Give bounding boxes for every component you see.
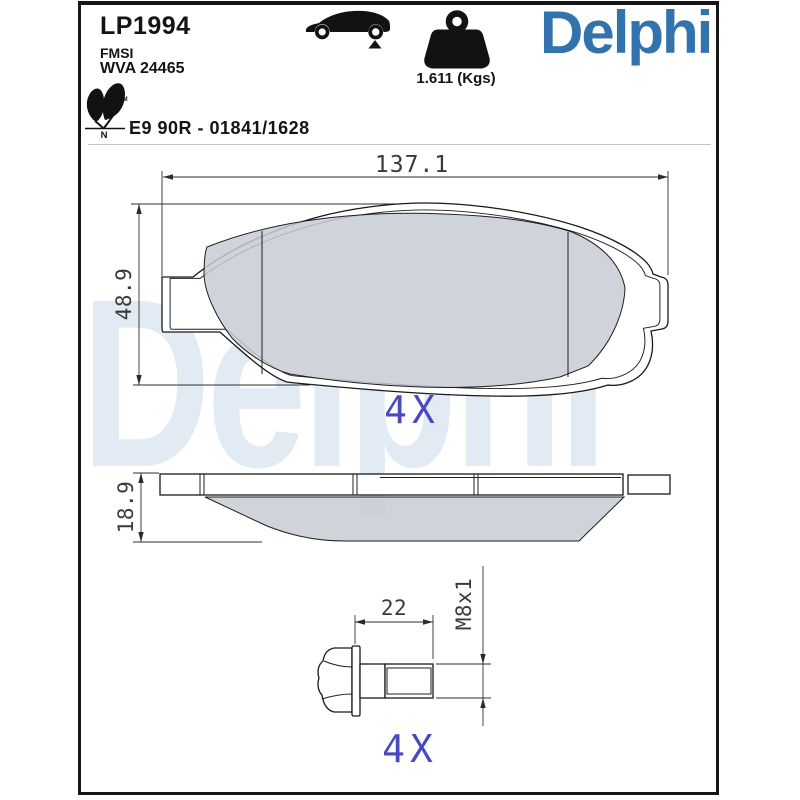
bolt-thread-spec-dimension: M8x1 bbox=[452, 578, 476, 631]
front-width-dimension: 137.1 bbox=[375, 152, 449, 178]
pad-front-view: 137.1 48.9 4X bbox=[112, 152, 668, 432]
front-quantity-label: 4X bbox=[384, 388, 440, 432]
car-marker-triangle-icon bbox=[369, 40, 382, 49]
weight-icon bbox=[424, 14, 490, 69]
part-number: LP1994 bbox=[100, 12, 191, 41]
datasheet-page: Delphi LP1994 FMSI WVA 24465 1.611 (Kgs)… bbox=[0, 0, 800, 800]
eco-mark-letter: N bbox=[101, 130, 108, 141]
profile-thickness-dimension: 18.9 bbox=[114, 481, 138, 534]
header-divider bbox=[88, 144, 711, 145]
trademark-symbol: TM bbox=[119, 97, 128, 103]
bolt-quantity-label: 4X bbox=[382, 727, 438, 771]
weight-value: 1.611 (Kgs) bbox=[405, 70, 507, 87]
wva-number: WVA 24465 bbox=[100, 60, 184, 78]
bolt-length-dimension: 22 bbox=[381, 596, 407, 620]
front-height-dimension: 48.9 bbox=[112, 268, 136, 321]
fmsi-label: FMSI bbox=[100, 45, 133, 61]
car-icon bbox=[306, 11, 390, 49]
eco-leaf-icon: N TM bbox=[85, 83, 128, 141]
technical-drawing: N TM 137.1 48.9 4 bbox=[0, 0, 800, 800]
pad-profile-view: 18.9 bbox=[114, 473, 670, 542]
bolt-view: 22 M8x1 4X bbox=[318, 566, 491, 771]
approval-code: E9 90R - 01841/1628 bbox=[129, 118, 310, 139]
delphi-logo: Delphi bbox=[540, 0, 711, 67]
